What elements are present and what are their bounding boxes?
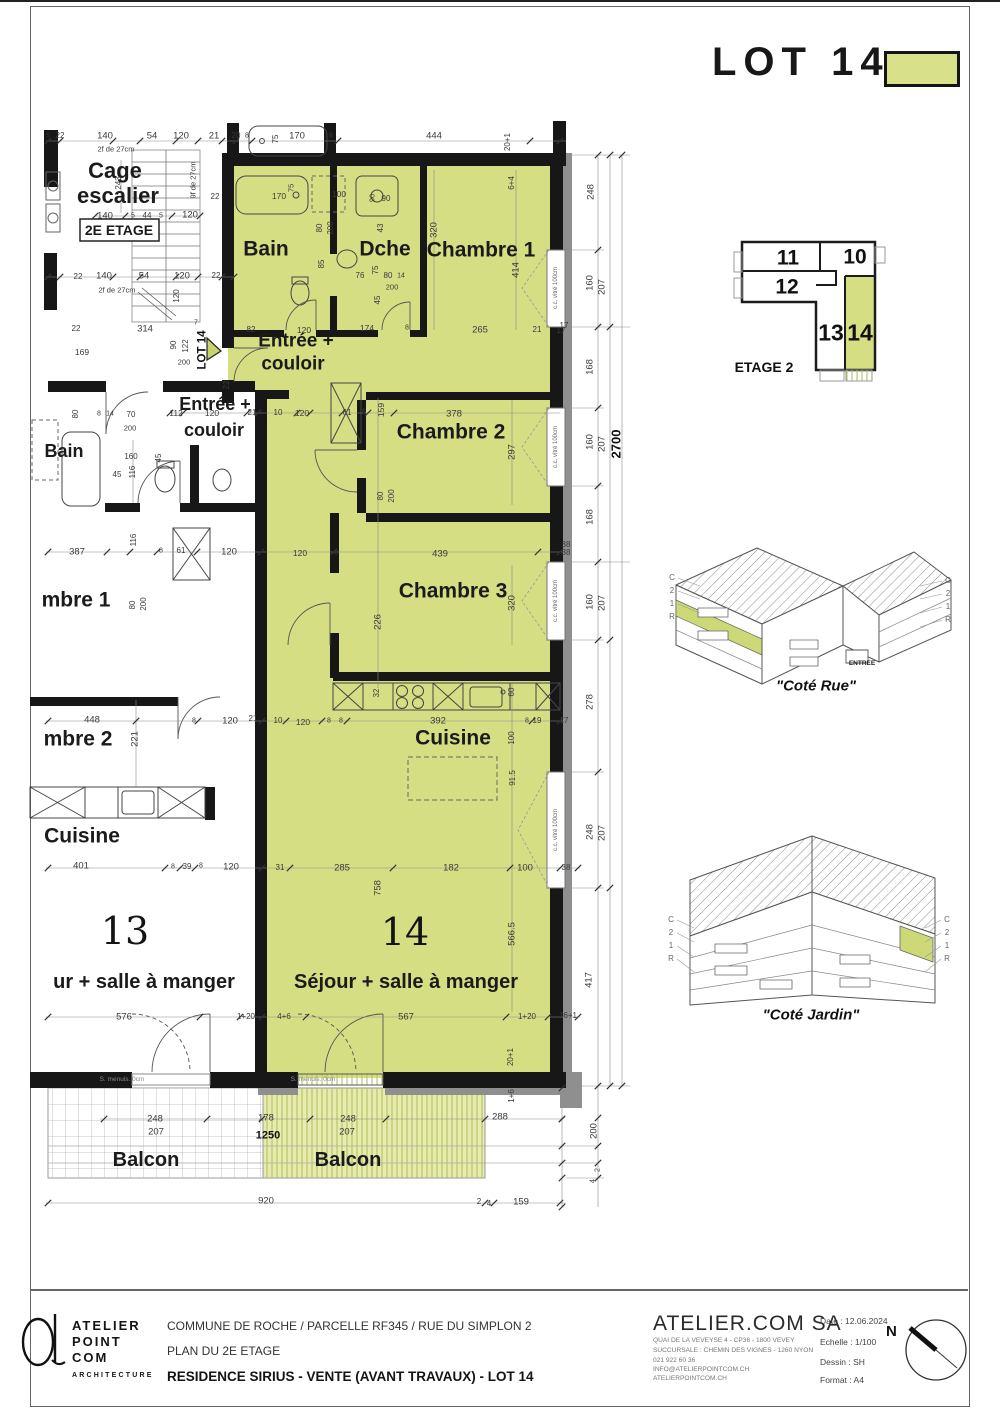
firm-address2: SUCCURSALE : CHEMIN DES VIGNES - 1260 NY… — [653, 1346, 813, 1356]
dim-label: 160 — [585, 275, 595, 291]
dim-label: 5 — [46, 133, 50, 140]
dim-label: 392 — [430, 716, 446, 726]
dim-label: 120 — [174, 271, 190, 281]
level-label: 1 — [670, 600, 674, 608]
dim-label: 2 — [477, 1198, 481, 1206]
dim-label: 576 — [116, 1012, 132, 1022]
dim-label: 160 — [585, 434, 595, 450]
dim-label: 116 — [129, 466, 137, 479]
dim-label: 758 — [373, 880, 383, 896]
dim-label: 200 — [386, 283, 399, 291]
level-label: 1 — [945, 942, 949, 950]
dim-label: 2f de 27cm — [97, 145, 134, 153]
dim-label: 320 — [507, 595, 517, 611]
dim-label: 85 — [318, 260, 326, 269]
dim-label: 200 — [178, 358, 191, 366]
dim-label: 44 — [143, 212, 152, 220]
dim-label: 120 — [295, 409, 309, 418]
dim-label: 31 — [276, 864, 285, 872]
dim-label: 120 — [296, 718, 310, 727]
keyplan-etage-label: ETAGE 2 — [735, 360, 794, 374]
dim-label: 120 — [223, 862, 239, 872]
level-label: 1 — [946, 603, 950, 611]
dim-label: 120 — [205, 409, 219, 418]
dim-label: 414 — [511, 262, 521, 278]
dim-label: 21 — [248, 409, 257, 417]
dim-label: 5 — [131, 213, 135, 220]
dim-label: 248 — [585, 824, 595, 840]
logo-text-line2: POINT — [72, 1334, 122, 1349]
room-label-chambre2: Chambre 2 — [397, 422, 506, 443]
dim-label: 285 — [334, 863, 350, 873]
dim-label: 80 — [129, 601, 137, 610]
logo-text-line3: COM — [72, 1350, 108, 1365]
keyplan-unit-12: 12 — [775, 277, 798, 298]
dim-label: 243 — [115, 176, 123, 189]
dim-label: 8 — [525, 718, 529, 725]
project-residence-line: RESIDENCE SIRIUS - VENTE (AVANT TRAVAUX)… — [167, 1369, 534, 1384]
dim-label: 8 — [171, 864, 175, 871]
dim-label: 160 — [585, 594, 595, 610]
dim-label: 91.5 — [509, 770, 517, 786]
dim-label: 444 — [426, 131, 442, 141]
dim-label: 8 — [327, 718, 331, 725]
room-label-cuisine13: Cuisine — [44, 826, 120, 847]
dim-label: 200 — [327, 221, 335, 234]
dim-label: 8 — [329, 133, 333, 140]
dim-label: 8 — [334, 550, 338, 557]
dim-label: 90 — [170, 341, 178, 350]
dim-label: 248 — [586, 184, 596, 200]
dim-label: 80 — [316, 224, 324, 233]
dim-label: 207 — [597, 279, 607, 295]
dim-label: 207 — [339, 1127, 355, 1137]
dim-label: 17 — [560, 322, 569, 330]
level-label: 2 — [945, 929, 949, 937]
level-label: C — [944, 916, 950, 924]
dim-label: 32 — [373, 689, 381, 698]
dim-label: 401 — [73, 861, 89, 871]
firm-name: ATELIER.COM SA — [653, 1312, 842, 1336]
room-label-sejour14: Séjour + salle à manger — [294, 972, 518, 992]
dim-label: 200 — [140, 597, 148, 610]
level-label: 2 — [946, 590, 950, 598]
window-label: c.c. vitré 100cm — [553, 267, 559, 309]
plan-sheet: LOT 14 — [0, 0, 1000, 1413]
dim-label: 8 — [339, 718, 343, 725]
dim-label: 17 — [560, 717, 569, 725]
dim-label: 10 — [274, 717, 283, 725]
dim-label: 22 — [212, 272, 221, 280]
level-label: C — [945, 577, 951, 585]
level-label: R — [945, 616, 951, 624]
dim-label: 21 — [533, 326, 542, 334]
dim-label: 120 — [297, 326, 311, 335]
dim-label: 54 — [139, 271, 150, 281]
dim-label: 159 — [513, 1197, 529, 1207]
project-plan-line: PLAN DU 2E ETAGE — [167, 1344, 280, 1358]
dim-label: 207 — [597, 436, 607, 452]
dim-label: 9f de 27cm — [189, 161, 197, 198]
dim-label: 140 — [97, 131, 113, 141]
level-label: C — [669, 574, 675, 582]
room-label-balcon13: Balcon — [113, 1150, 180, 1170]
dim-label: 10 — [274, 409, 283, 417]
dim-label: 90 — [368, 194, 376, 202]
dim-label: 8 — [199, 863, 203, 870]
dim-label: 38 — [562, 549, 571, 557]
label-entree-axon: ENTREE — [849, 661, 875, 668]
label-2e-etage: 2E ETAGE — [85, 223, 153, 237]
dim-label: 314 — [137, 324, 153, 334]
dim-label: 1+20 — [237, 1013, 255, 1021]
north-label: N — [886, 1323, 897, 1340]
dim-label: 221 — [130, 731, 140, 747]
dim-label: 320 — [429, 222, 439, 238]
room-label-chambre3: Chambre 3 — [399, 581, 508, 602]
room-label-cuisine14: Cuisine — [415, 728, 491, 749]
dim-label: 5 — [159, 213, 163, 220]
meta-date: Date : 12.06.2024 — [820, 1316, 888, 1326]
level-label: C — [668, 916, 674, 924]
label-menuiserie: S. menuis. 0cm — [291, 1077, 336, 1084]
dim-label: 120 — [182, 210, 198, 220]
dim-label: 120 — [222, 716, 238, 726]
window-label: c.c. vitré 100cm — [553, 426, 559, 468]
dim-label: 112 — [169, 409, 183, 418]
level-label: R — [668, 955, 674, 963]
dim-label: 200 — [589, 1123, 599, 1139]
level-label: R — [669, 613, 675, 621]
dim-label: 160 — [124, 453, 137, 461]
level-label: R — [944, 955, 950, 963]
dim-label: 417 — [584, 972, 594, 988]
dim-label: 2f de 27cm — [98, 286, 135, 294]
dim-label: 170 — [289, 131, 305, 141]
dim-label: 207 — [148, 1127, 164, 1137]
dim-label: 8 — [362, 409, 366, 416]
dim-label: 265 — [472, 325, 488, 335]
dim-label: 21 — [209, 131, 220, 141]
dim-label-total: 2700 — [610, 430, 623, 459]
dim-label: 120 — [173, 289, 181, 302]
dim-label: 920 — [258, 1196, 274, 1206]
dim-label: 100 — [332, 190, 346, 199]
dim-label: 90 — [382, 195, 391, 203]
dim-label: 120 — [173, 131, 189, 141]
dim-label: 38 — [562, 864, 571, 872]
dim-label: 116 — [130, 534, 138, 547]
keyplan-unit-14: 14 — [847, 322, 873, 345]
dim-label: 248 — [147, 1114, 163, 1124]
dim-label: 122 — [182, 339, 190, 352]
room-label-chambre2-13: mbre 2 — [44, 729, 113, 750]
dim-label: 387 — [69, 547, 85, 557]
keyplan-unit-10: 10 — [843, 247, 866, 268]
tag-lot14-entrance: LOT 14 — [197, 331, 209, 370]
dim-label: 140 — [97, 211, 113, 221]
dim-label: 8 — [245, 133, 249, 140]
dim-label: 207 — [597, 595, 607, 611]
label-menuiserie: S. menuis. 0cm — [100, 1077, 145, 1084]
dim-label: 60 — [508, 688, 516, 697]
unit-number-14: 14 — [381, 913, 429, 951]
logo-text-line1: ATELIER — [72, 1318, 141, 1333]
firm-web: ATELIERPOINTCOM.CH — [653, 1374, 727, 1384]
dim-label: 448 — [84, 715, 100, 725]
dim-label: 248 — [340, 1114, 356, 1124]
dim-label: 8 — [192, 718, 196, 725]
dim-label: 6+4 — [508, 176, 516, 190]
dim-label: 14 — [397, 273, 405, 280]
dim-label: 61 — [177, 547, 186, 555]
dim-label: 8 — [97, 411, 101, 418]
keyplan-unit-13: 13 — [818, 322, 844, 345]
dim-label: 21 — [249, 715, 258, 723]
dim-label: 226 — [373, 614, 383, 630]
annotation-layer: Cageescalier2E ETAGEBainDcheChambre 1Ent… — [0, 0, 1000, 1413]
dim-label: 1250 — [256, 1131, 280, 1142]
dim-label: 14 — [106, 411, 114, 418]
dim-label: 178 — [258, 1113, 274, 1123]
dim-label: 39 — [183, 863, 192, 871]
dim-label: 75 — [272, 135, 280, 144]
dim-label: 140 — [96, 271, 112, 281]
level-label: 1 — [669, 942, 673, 950]
dim-label: 567 — [398, 1012, 414, 1022]
window-label: c.c. vitré 100cm — [553, 580, 559, 622]
dim-label: 22 — [56, 132, 65, 140]
dim-label: 288 — [492, 1112, 508, 1122]
dim-label: 182 — [443, 863, 459, 873]
dim-label: 100 — [517, 863, 533, 873]
dim-label: 45 — [113, 471, 122, 479]
dim-label: 16+1 — [559, 1012, 577, 1020]
dim-label: 4 — [590, 1179, 597, 1183]
dim-label: 43 — [377, 224, 385, 233]
dim-label: 2 — [595, 1168, 602, 1172]
room-label-entree13: couloir — [184, 421, 244, 439]
dim-label: 54 — [147, 131, 158, 141]
meta-format: Format : A4 — [820, 1375, 864, 1385]
dim-label: 120 — [293, 549, 307, 558]
dim-label: 200 — [388, 489, 396, 502]
dim-label: 19 — [533, 717, 542, 725]
caption-cote-jardin: "Coté Jardin" — [763, 1008, 860, 1023]
unit-number-13: 13 — [101, 912, 149, 950]
dim-label: 22 — [74, 273, 83, 281]
room-label-entree14: couloir — [261, 355, 324, 374]
room-label-sejour13: ur + salle à manger — [53, 972, 235, 992]
dim-label: 80 — [72, 410, 80, 419]
dim-label: 120 — [221, 547, 237, 557]
meta-dessin: Dessin : SH — [820, 1357, 865, 1367]
dim-label: 82 — [247, 326, 256, 334]
dim-label: 22 — [72, 325, 81, 333]
room-label-balcon14: Balcon — [315, 1150, 382, 1170]
dim-label: 1+20 — [518, 1013, 536, 1021]
dim-label: 8 — [405, 325, 409, 332]
dim-label: 70 — [127, 411, 136, 419]
dim-label: 168 — [585, 509, 595, 525]
dim-label: 100 — [508, 731, 516, 744]
dim-label: 7 — [194, 320, 198, 327]
dim-label: 45 — [155, 454, 163, 463]
level-label: 2 — [670, 587, 674, 595]
project-commune-line: COMMUNE DE ROCHE / PARCELLE RF345 / RUE … — [167, 1319, 532, 1333]
keyplan-unit-11: 11 — [777, 248, 799, 269]
dim-label: 170 — [272, 192, 286, 201]
dim-label: 45 — [374, 296, 382, 305]
dim-label: 207 — [597, 825, 607, 841]
dim-label: 75 — [287, 184, 295, 192]
dim-label: 8 — [159, 548, 163, 555]
dim-label: 200 — [124, 424, 137, 432]
dim-label: 159 — [377, 403, 386, 417]
dim-label: 566.5 — [507, 922, 517, 946]
firm-address1: QUAI DE LA VEVEYSE 4 - CP36 - 1800 VEVEY — [653, 1336, 794, 1346]
dim-label: 297 — [507, 444, 517, 460]
dim-label: 76 — [356, 272, 365, 280]
dim-label: 80 — [377, 492, 385, 501]
dim-label: 20+1 — [504, 133, 512, 151]
window-label: c.c. vitré 100cm — [553, 809, 559, 851]
dim-label: 75 — [372, 266, 380, 275]
dim-label: 38 — [562, 541, 571, 549]
room-label-chambre1-13: mbre 1 — [42, 590, 111, 611]
dim-label: 20 — [232, 132, 241, 140]
dim-label: 22 — [211, 193, 220, 201]
room-label-dche: Dche — [359, 239, 410, 260]
dim-label: 168 — [585, 359, 595, 375]
level-label: 2 — [669, 929, 673, 937]
dim-label: 22 — [223, 381, 231, 390]
dim-label: 4 — [487, 1200, 491, 1208]
meta-echelle: Echelle : 1/100 — [820, 1337, 876, 1347]
caption-cote-rue: "Coté Rue" — [776, 679, 856, 694]
room-label-bain13: Bain — [44, 442, 83, 460]
logo-subtitle: ARCHITECTURE — [72, 1372, 154, 1379]
dim-label: 80 — [384, 272, 393, 280]
dim-label: 61 — [343, 409, 352, 417]
dim-label: 278 — [585, 694, 595, 710]
dim-label: 20+1 — [507, 1048, 515, 1066]
dim-label: 439 — [432, 549, 448, 559]
dim-label: 1+6 — [508, 1089, 516, 1103]
dim-label: 174 — [360, 324, 374, 333]
dim-label: 169 — [75, 348, 89, 357]
dim-label: 4+6 — [277, 1013, 291, 1021]
room-label-bain-14: Bain — [243, 239, 289, 260]
room-label-chambre1: Chambre 1 — [427, 240, 536, 261]
dim-label: 378 — [446, 409, 462, 419]
